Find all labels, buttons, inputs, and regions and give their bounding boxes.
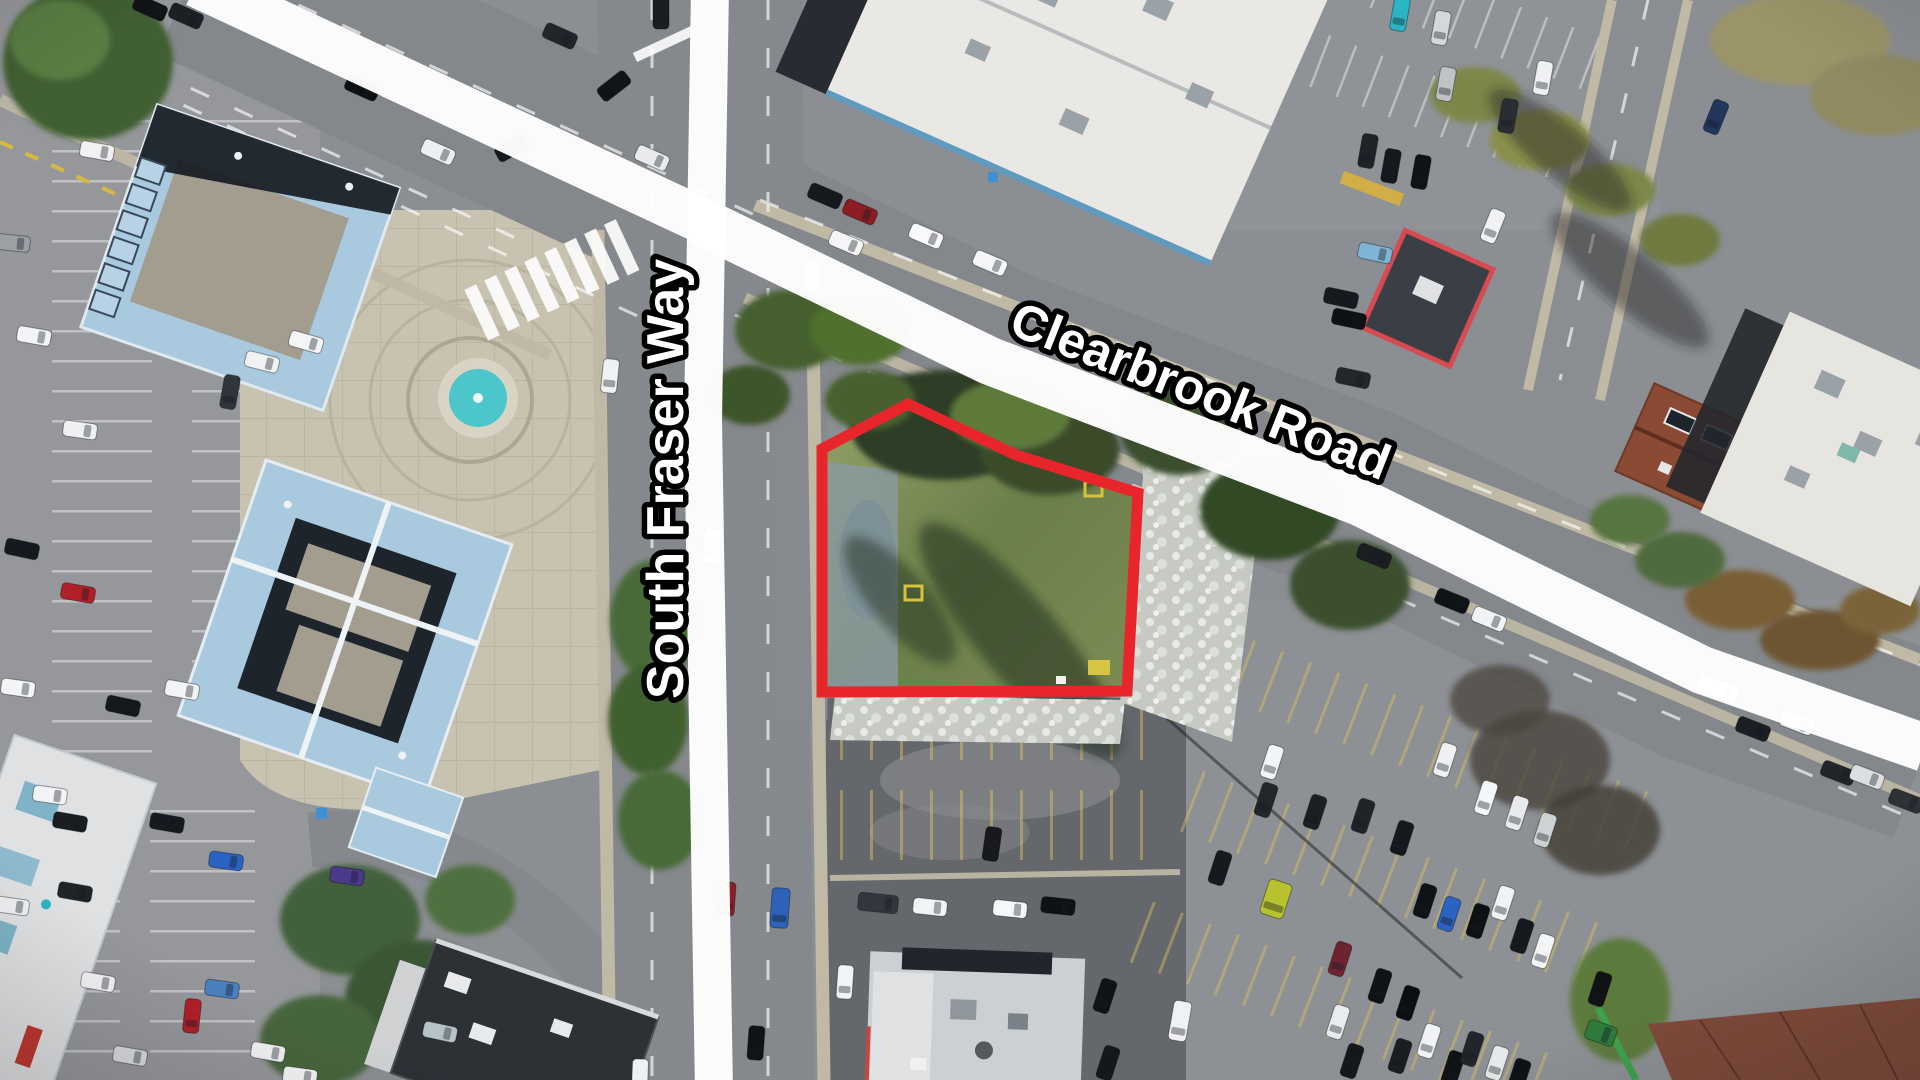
aerial-photo: Clearbrook Road South Fraser Way <box>0 0 1920 1080</box>
vignette <box>0 0 1920 1080</box>
aerial-photo-canvas: Clearbrook Road South Fraser Way <box>0 0 1920 1080</box>
